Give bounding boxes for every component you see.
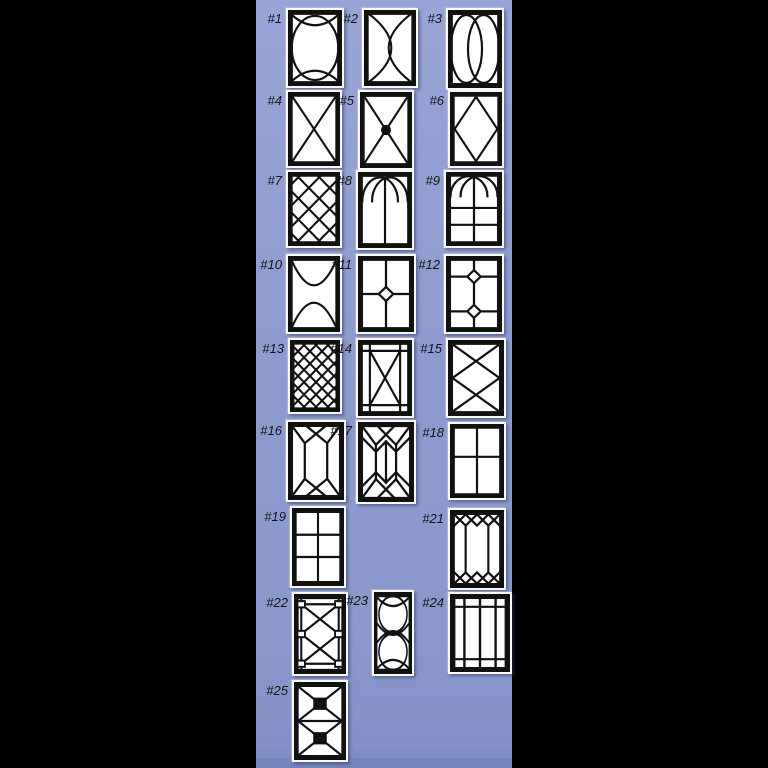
window-pattern-9 [446, 172, 502, 246]
design-label: #10 [246, 258, 282, 272]
design-label: #13 [248, 342, 284, 356]
design-label: #16 [246, 424, 282, 438]
window-pattern-23 [374, 592, 412, 674]
window-design-thumbnail-18[interactable] [448, 422, 506, 500]
design-label: #23 [332, 594, 368, 608]
design-label: #24 [408, 596, 444, 610]
window-design-thumbnail-3[interactable] [446, 8, 504, 90]
design-label: #21 [408, 512, 444, 526]
design-label: #3 [406, 12, 442, 26]
design-label: #18 [408, 426, 444, 440]
window-pattern-5 [360, 92, 412, 168]
window-pattern-17 [358, 422, 414, 502]
design-label: #25 [252, 684, 288, 698]
design-label: #2 [322, 12, 358, 26]
window-pattern-21 [450, 510, 504, 588]
design-label: #8 [316, 174, 352, 188]
design-label: #1 [246, 12, 282, 26]
window-pattern-19 [292, 508, 344, 586]
window-design-thumbnail-6[interactable] [448, 90, 504, 168]
window-design-thumbnail-17[interactable] [356, 420, 416, 504]
window-design-thumbnail-24[interactable] [448, 592, 512, 674]
window-pattern-15 [448, 340, 504, 416]
design-label: #6 [408, 94, 444, 108]
design-label: #12 [404, 258, 440, 272]
window-design-thumbnail-25[interactable] [292, 680, 348, 762]
window-design-thumbnail-15[interactable] [446, 338, 506, 418]
window-design-thumbnail-9[interactable] [444, 170, 504, 248]
screenshot-canvas: #1#2#3#4#5#6#7#8#9#10#11#12#13#14#15#16#… [0, 0, 768, 768]
window-pattern-12 [446, 256, 502, 332]
window-pattern-6 [450, 92, 502, 166]
design-label: #11 [316, 258, 352, 272]
window-pattern-18 [450, 424, 504, 498]
window-design-thumbnail-19[interactable] [290, 506, 346, 588]
design-label: #5 [318, 94, 354, 108]
window-pattern-3 [448, 10, 502, 88]
design-label: #19 [250, 510, 286, 524]
window-design-thumbnail-5[interactable] [358, 90, 414, 170]
window-pattern-24 [450, 594, 510, 672]
design-label: #9 [404, 174, 440, 188]
window-pattern-25 [294, 682, 346, 760]
design-label: #17 [316, 424, 352, 438]
design-label: #4 [246, 94, 282, 108]
window-design-thumbnail-21[interactable] [448, 508, 506, 590]
design-label: #15 [406, 342, 442, 356]
design-label: #7 [246, 174, 282, 188]
window-pattern-14 [358, 340, 412, 416]
window-design-thumbnail-12[interactable] [444, 254, 504, 334]
design-label: #22 [252, 596, 288, 610]
design-label: #14 [316, 342, 352, 356]
